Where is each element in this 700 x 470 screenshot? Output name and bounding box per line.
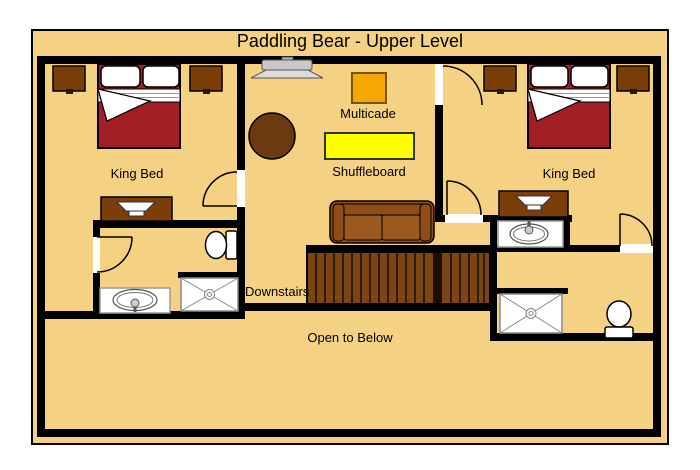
nightstand-icon [484,66,516,91]
nightstand-icon [190,66,222,91]
nightstand-handle [630,89,637,94]
plan-title: Paddling Bear - Upper Level [237,31,463,51]
dresser-tv-icon [499,191,568,217]
left-bedroom-door-gap [237,170,245,207]
multicade-icon [352,73,386,103]
nightstand-icon [53,66,85,91]
left-bedroom-label: King Bed [111,166,164,181]
right-bedroom-door-gap [435,64,443,105]
nightstand-handle [203,89,210,94]
stair-rail [433,253,442,303]
nightstand-handle [66,89,73,94]
shuffleboard-label: Shuffleboard [332,164,406,179]
open-to-below-label: Open to Below [307,330,393,345]
shower-icon [181,278,238,311]
wall-right-bath-south [490,333,661,341]
pillow [531,66,568,87]
sink-icon [498,221,563,247]
right-hall-door-gap [445,214,483,223]
downstairs-label: Downstairs [245,284,310,299]
toilet-icon [206,231,238,259]
wall-left-shower [178,272,245,278]
pillow [571,66,608,87]
wall-left [37,56,45,437]
nightstand-icon [617,66,649,91]
multicade-label: Multicade [340,106,396,121]
left-bath-door-gap [93,237,100,273]
right-bedroom-label: King Bed [543,166,596,181]
sink-icon [100,288,170,313]
right-bath-door-gap [620,244,653,253]
shuffleboard-icon [325,133,414,159]
round-table-icon [249,113,295,159]
king-bed-icon [98,64,180,148]
pillow [101,66,140,87]
king-bed-icon [528,64,610,148]
floor-plan-page: Paddling Bear - Upper Level [0,0,700,470]
floor-plan: Paddling Bear - Upper Level [0,0,700,470]
wall-right-shower [495,288,568,294]
wall-top [37,56,661,64]
dresser-tv-icon [101,197,172,221]
shower-icon [500,294,562,333]
nightstand-handle [497,89,504,94]
toilet-icon [605,301,633,338]
couch-icon [330,201,434,243]
pillow [143,66,179,87]
wall-stairs-east [490,217,497,341]
wall-bottom [37,429,661,437]
wall-right [653,56,661,437]
